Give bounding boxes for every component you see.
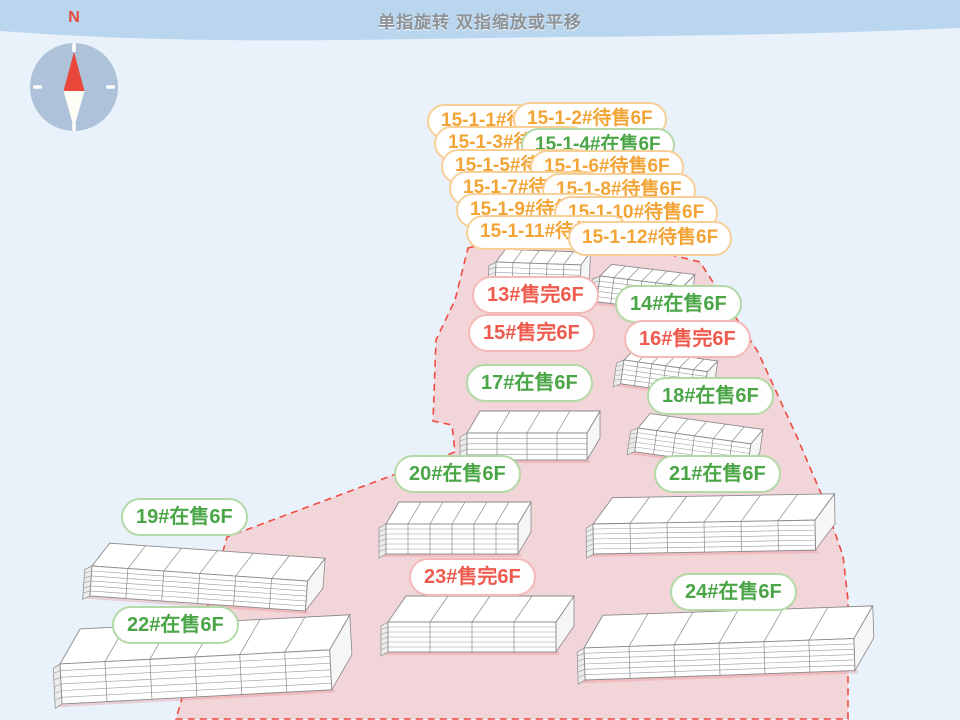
building-label-23[interactable]: 23#售完6F xyxy=(409,558,536,596)
building-label-19[interactable]: 19#在售6F xyxy=(121,498,248,536)
building-label-18[interactable]: 18#在售6F xyxy=(647,377,774,415)
building-label-17[interactable]: 17#在售6F xyxy=(466,364,593,402)
building-label-16[interactable]: 16#售完6F xyxy=(624,320,751,358)
building-label-24[interactable]: 24#在售6F xyxy=(670,573,797,611)
label-layer: 15-1-1#待售6F15-1-2#待售6F15-1-3#待售6F15-1-4#… xyxy=(0,0,960,720)
building-label-15-1-12[interactable]: 15-1-12#待售6F xyxy=(568,221,732,256)
building-label-21[interactable]: 21#在售6F xyxy=(654,455,781,493)
building-label-14[interactable]: 14#在售6F xyxy=(615,285,742,323)
building-label-15[interactable]: 15#售完6F xyxy=(468,314,595,352)
building-label-13[interactable]: 13#售完6F xyxy=(472,276,599,314)
building-label-22[interactable]: 22#在售6F xyxy=(112,606,239,644)
building-label-20[interactable]: 20#在售6F xyxy=(394,455,521,493)
